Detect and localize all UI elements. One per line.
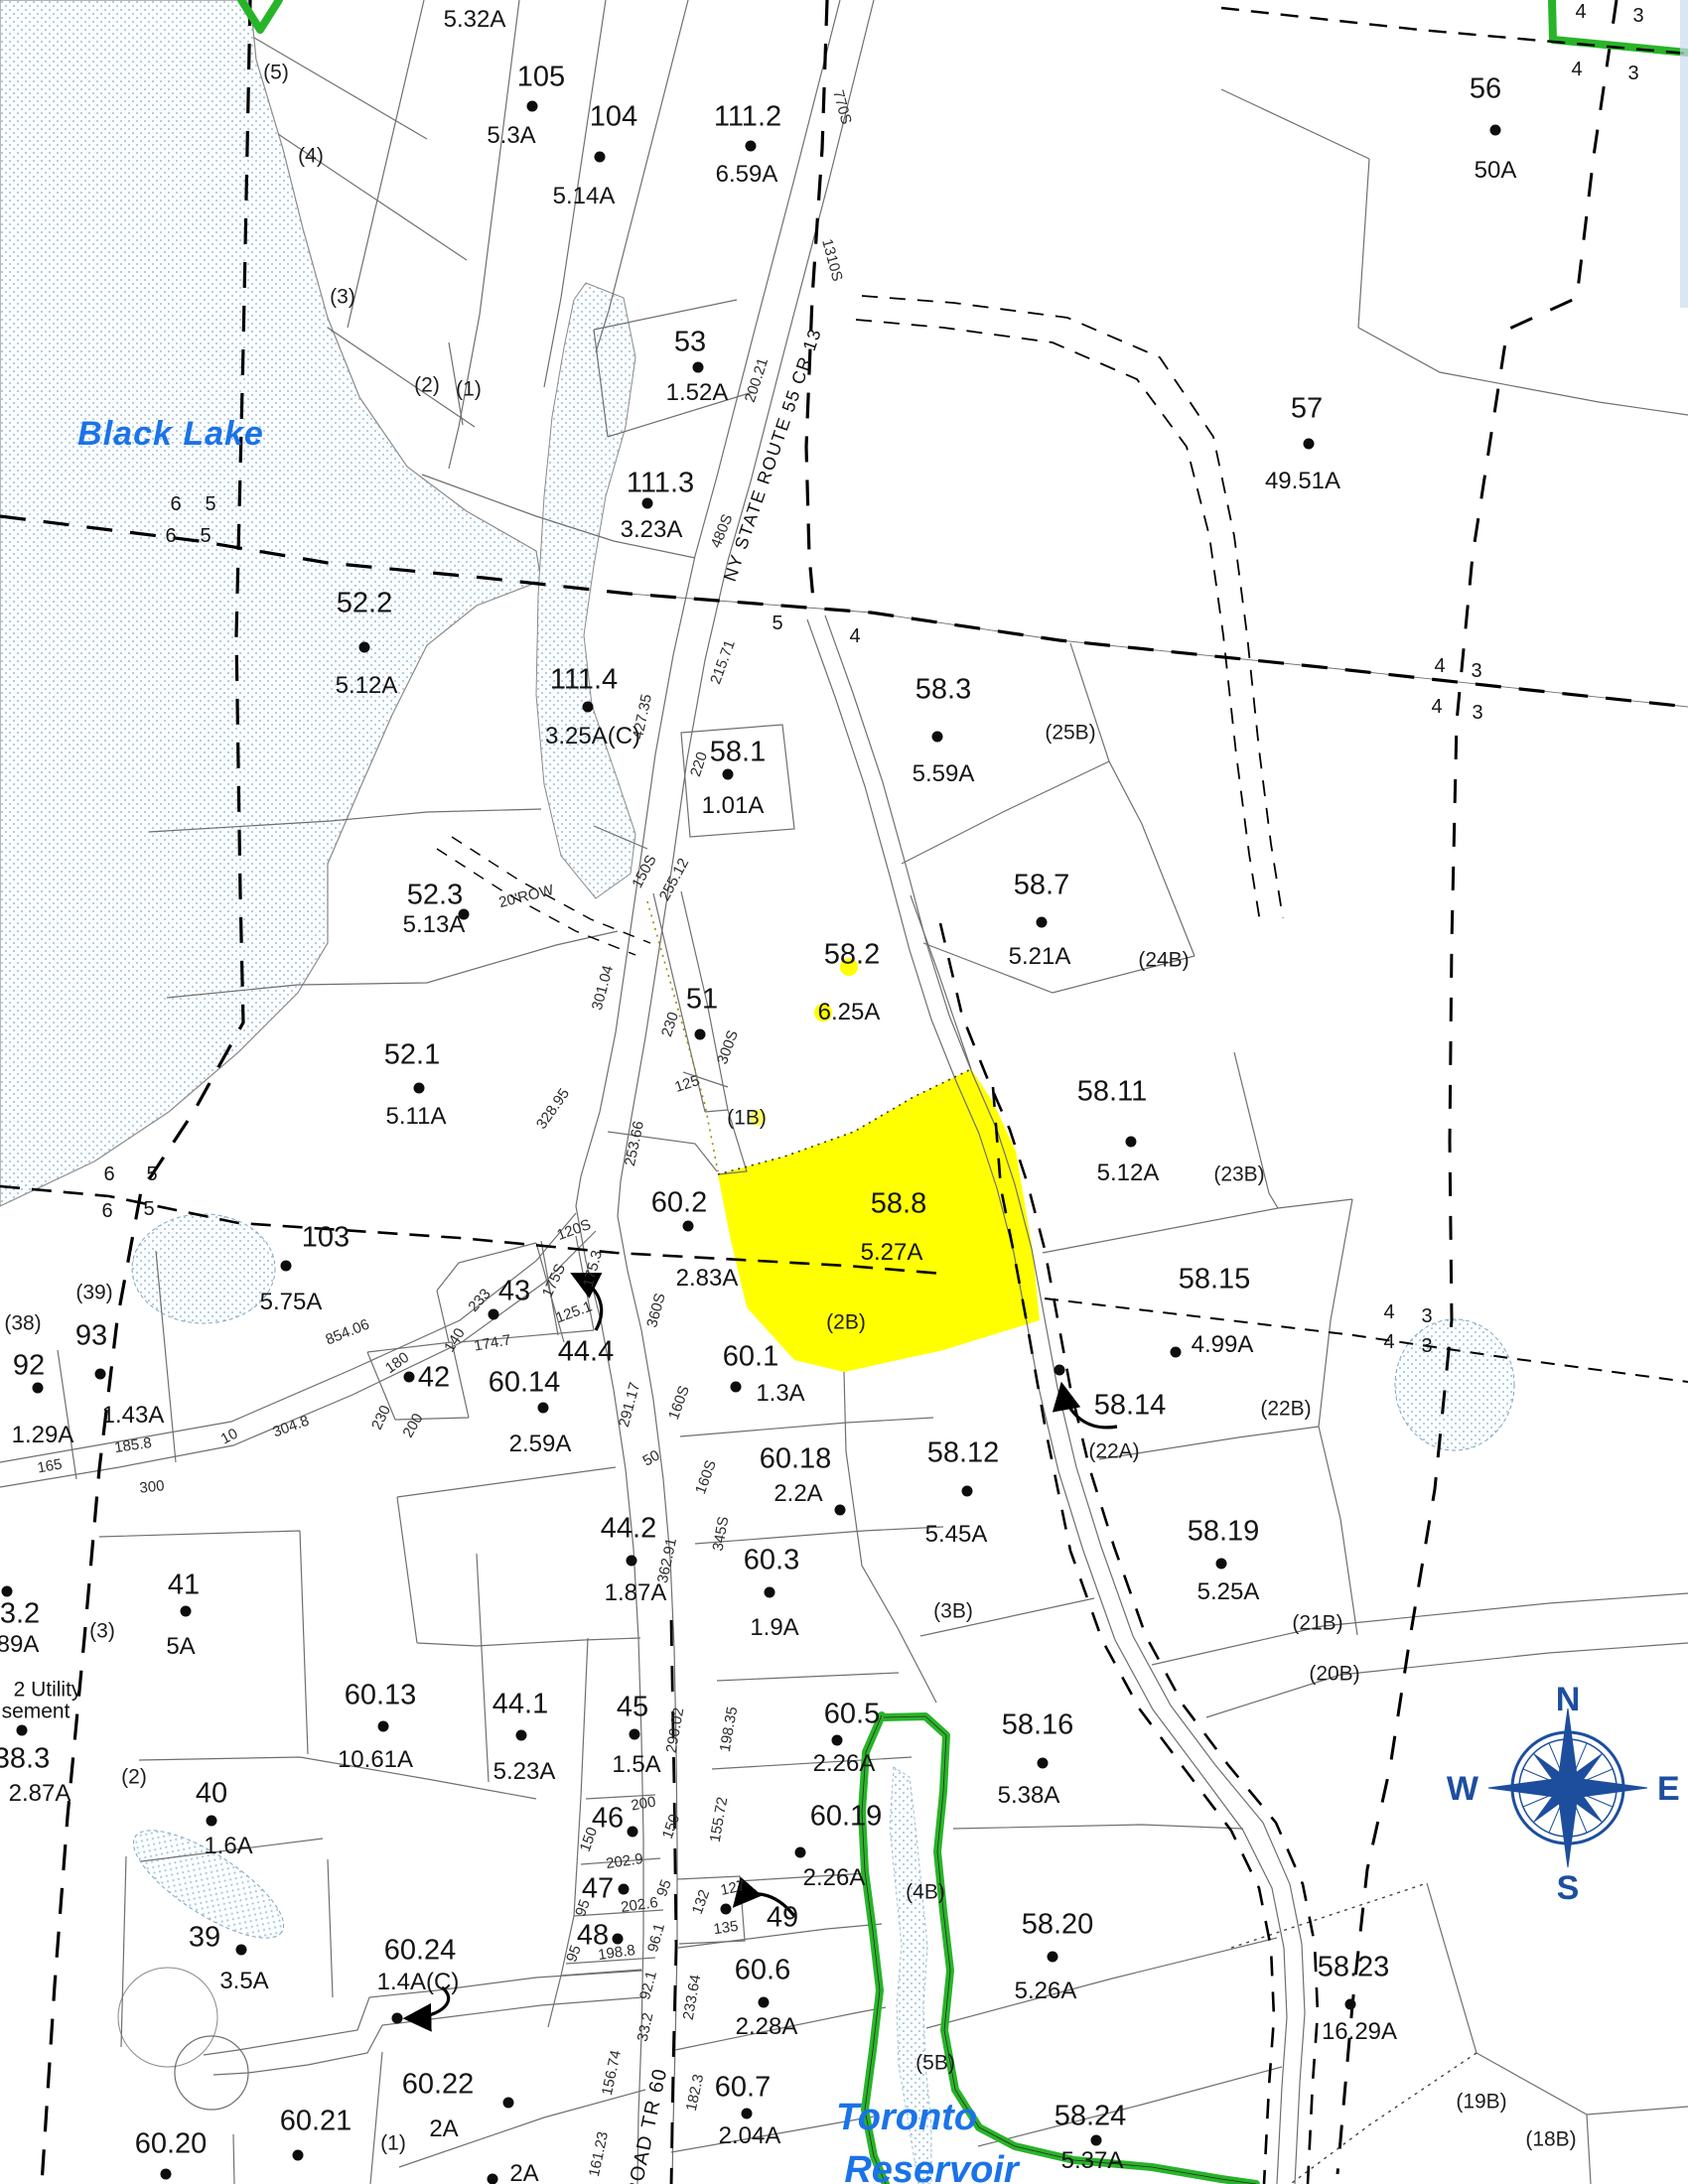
reservoir-corridor-east	[884, 1716, 1256, 2184]
route-55-east-edge	[618, 0, 874, 2184]
yellow-boundary-dots	[750, 958, 858, 1126]
culdesac-circle	[175, 2036, 248, 2110]
branch-road-south-edge	[0, 1231, 596, 1487]
culdesac-road-north-edge	[204, 1971, 642, 2055]
tax-parcel-map-canvas[interactable]: N S W E Black Lake Toronto Reservoir NY …	[0, 0, 1688, 2184]
compass-e: E	[1657, 1770, 1680, 1808]
culdesac-road-south-edge	[213, 1997, 642, 2075]
compass-n: N	[1556, 1681, 1581, 1718]
highlighted-parcel-58-8[interactable]	[718, 1069, 1040, 1372]
branch-road-north-edge	[0, 1213, 576, 1462]
compass-w: W	[1447, 1770, 1479, 1808]
compass-rose: N S W E	[1447, 1681, 1680, 1907]
arrow-49	[737, 1894, 794, 1916]
map-linework: N S W E	[0, 0, 1688, 2184]
reservoir-stream	[890, 1767, 931, 2184]
arrow-60-24	[409, 1987, 449, 2018]
compass-s: S	[1557, 1869, 1580, 1907]
arrow-58-14	[1062, 1388, 1117, 1428]
green-corner-dash-overlay	[1221, 8, 1688, 54]
green-corner-top-right	[1552, 0, 1688, 53]
east-road-west-edge	[807, 619, 1287, 2184]
black-lake-water	[0, 0, 635, 1206]
callout-arrows	[409, 1276, 1117, 2018]
map-sheet-edge	[1680, 0, 1688, 308]
